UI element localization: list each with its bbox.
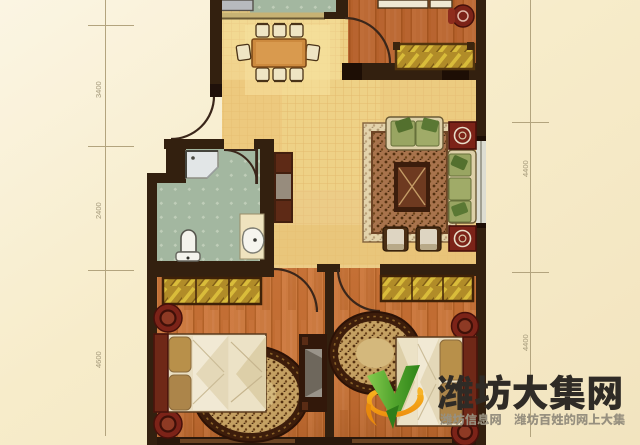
svg-text:4400: 4400 <box>521 160 530 177</box>
svg-text:4400: 4400 <box>521 334 530 351</box>
svg-text:3400: 3400 <box>94 81 103 98</box>
svg-text:4600: 4600 <box>94 351 103 368</box>
svg-text:2400: 2400 <box>94 202 103 219</box>
